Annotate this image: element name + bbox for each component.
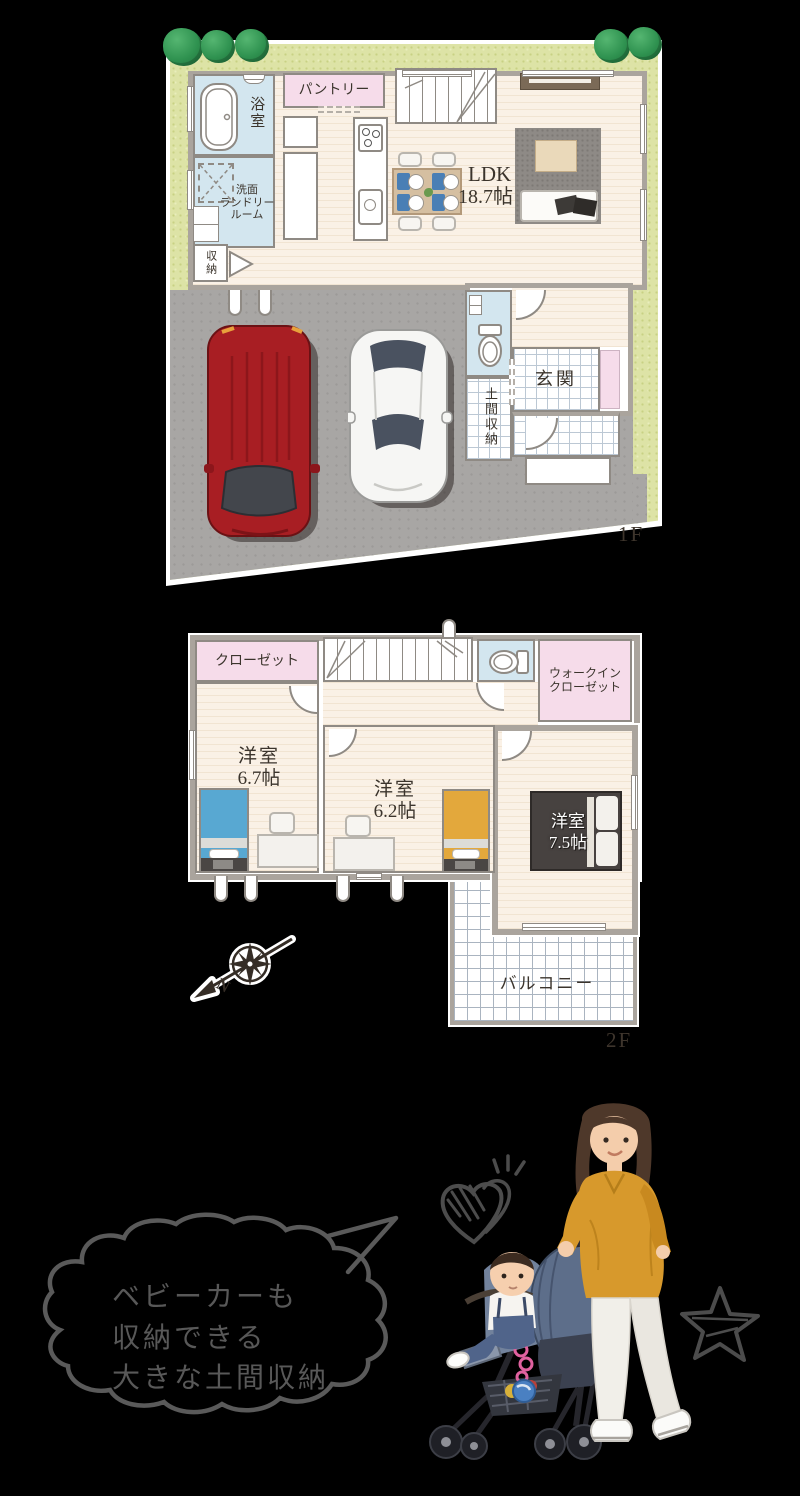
tree-icon (163, 28, 203, 66)
stairs-2f (323, 637, 473, 682)
bed-blue (199, 788, 249, 873)
sink-icon (358, 189, 383, 225)
desk (333, 837, 395, 871)
floor-tag-2f: 2F (606, 1028, 632, 1053)
desk (257, 834, 319, 868)
coffee-table (535, 140, 577, 172)
room-b: 洋室 6.2帖 (323, 725, 495, 873)
room-toilet-2f (477, 639, 535, 682)
pantry-opening (318, 106, 360, 113)
storage-door (228, 250, 254, 278)
tree-icon (235, 29, 269, 62)
kitchen-cabinet-2 (283, 152, 318, 240)
toilet-icon (476, 324, 504, 370)
genkan-closet (600, 350, 620, 409)
room-c-label: 洋室 7.5帖 (534, 811, 602, 854)
window (640, 189, 647, 241)
plate (443, 195, 459, 211)
window (402, 70, 472, 77)
room-doma-label: 土間収納 (482, 387, 497, 447)
room-storage-label: 収納 (204, 250, 217, 276)
room-pantry-label: パントリー (285, 83, 383, 99)
door-leaf (442, 619, 456, 637)
heart-doodle-icon (443, 1156, 524, 1242)
toilet-sink (469, 295, 482, 315)
page: 浴室 洗面 ランドリー ルーム 収納 (0, 0, 800, 1496)
room-toilet-1f (465, 290, 512, 377)
dining-chair (398, 152, 422, 167)
walkin-closet-label: ウォークイン クローゼット (540, 667, 630, 695)
porch (525, 457, 611, 485)
white-car-icon (348, 328, 456, 508)
driveway-right (633, 474, 647, 564)
sofa (520, 190, 598, 222)
compass-icon: N (188, 930, 303, 1010)
window (522, 70, 614, 77)
callout-line-3: 大きな土間収納 (112, 1359, 329, 1400)
star-doodle-icon (682, 1288, 758, 1360)
plate (443, 174, 459, 190)
room-a: 洋室 6.7帖 (195, 682, 319, 873)
desk-chair (269, 812, 295, 834)
doma-opening (509, 359, 515, 405)
tree-icon (201, 30, 235, 63)
room-genkan-label: 玄関 (514, 369, 598, 390)
callout-line-2: 収納できる (112, 1319, 329, 1360)
door-leaf (214, 876, 228, 902)
floorplan-1f: 浴室 洗面 ランドリー ルーム 収納 (166, 40, 662, 586)
kitchen-cabinet (283, 116, 318, 148)
room-genkan: 玄関 (512, 347, 600, 412)
dining-table (392, 168, 462, 215)
room-bath-label: 浴室 (247, 96, 264, 130)
door-leaf (258, 290, 272, 316)
plate (408, 174, 424, 190)
callout-text: ベビーカーも 収納できる 大きな土間収納 (112, 1278, 329, 1400)
bed-double: 洋室 7.5帖 (530, 791, 622, 871)
bed-yellow (442, 789, 490, 873)
bathtub-icon (199, 82, 239, 152)
tree-icon (628, 27, 662, 60)
callout-line-1: ベビーカーも (112, 1278, 329, 1319)
tree-icon (594, 29, 630, 63)
cushion (573, 197, 597, 217)
room-b-door (329, 729, 357, 757)
window (187, 170, 194, 210)
room-c-door (502, 731, 532, 761)
closet-a-label: クローゼット (197, 654, 317, 670)
balcony-label: バルコニー (472, 974, 622, 994)
callout-bubble: ベビーカーも 収納できる 大きな土間収納 (30, 1212, 415, 1452)
room-pantry: パントリー (283, 73, 385, 108)
room-laundry-label: 洗面 ランドリー ルーム (217, 184, 277, 222)
window (356, 873, 382, 880)
window (187, 86, 194, 132)
room-c: 洋室 7.5帖 (498, 731, 632, 929)
kitchen-counter (353, 117, 388, 241)
window (189, 730, 196, 780)
window (640, 104, 647, 154)
baby-figure (445, 1252, 536, 1370)
door-leaf (228, 290, 242, 316)
room-bath: 浴室 (193, 74, 275, 156)
floor-tag-1f: 1F (618, 522, 644, 547)
room-laundry: 洗面 ランドリー ルーム (193, 156, 275, 248)
plate (408, 195, 424, 211)
dining-chair (432, 216, 456, 231)
walkin-closet: ウォークイン クローゼット (538, 639, 632, 722)
dining-chair (398, 216, 422, 231)
stove-icon (358, 124, 383, 152)
door-leaf (390, 876, 404, 902)
door-leaf (336, 876, 350, 902)
plot-grass-1f: 浴室 洗面 ランドリー ルーム 収納 (170, 44, 658, 582)
closet-a: クローゼット (195, 640, 319, 682)
desk-chair (345, 815, 371, 837)
room-a-door (289, 686, 317, 714)
vanity-icon (193, 206, 219, 242)
window (631, 775, 638, 830)
room-storage: 収納 (193, 244, 228, 282)
door-leaf (244, 876, 258, 902)
window (522, 923, 606, 931)
entrance-step (512, 412, 620, 457)
toilet-icon (487, 646, 531, 678)
mother-stroller-photo (400, 1090, 800, 1496)
room-doma: 土間収納 (465, 377, 512, 461)
dining-chair (432, 152, 456, 167)
bath-sink (243, 74, 265, 84)
room-a-label: 洋室 6.7帖 (219, 746, 299, 790)
hall-2f (323, 682, 538, 725)
red-car-icon (204, 322, 322, 544)
